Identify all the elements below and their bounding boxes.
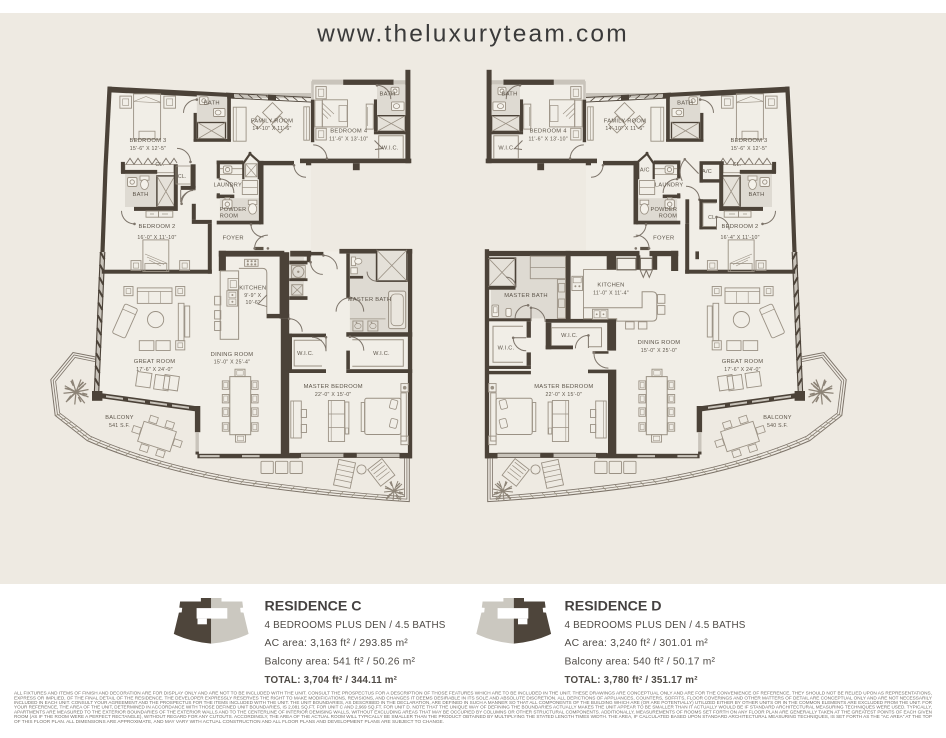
svg-text:9'-9" X: 9'-9" X [244,293,261,299]
svg-text:FOYER: FOYER [653,236,674,242]
svg-text:BATH: BATH [501,91,517,97]
svg-text:MASTER BATH: MASTER BATH [504,293,548,299]
svg-text:BEDROOM 2: BEDROOM 2 [721,224,758,230]
svg-text:BEDROOM 3: BEDROOM 3 [129,138,166,144]
svg-text:www.theluxuryteam.com: www.theluxuryteam.com [316,21,629,48]
svg-text:BATH: BATH [379,91,395,97]
svg-text:W.I.C.: W.I.C. [373,351,390,357]
svg-text:W.I.C.: W.I.C. [561,333,578,339]
svg-text:W.I.C.: W.I.C. [297,351,314,357]
svg-text:BATH: BATH [204,100,220,106]
svg-text:ROOM: ROOM [220,214,238,220]
svg-text:4 BEDROOMS PLUS DEN / 4.5 BATH: 4 BEDROOMS PLUS DEN / 4.5 BATHS [265,620,446,631]
svg-text:17'-6" X 24'-0": 17'-6" X 24'-0" [724,367,761,373]
svg-text:CL.: CL. [178,174,187,180]
svg-text:POWDER: POWDER [220,207,247,213]
svg-text:TOTAL: 3,704 ft² / 344.11 m²: TOTAL: 3,704 ft² / 344.11 m² [265,675,398,686]
svg-text:RESIDENCE D: RESIDENCE D [565,599,662,615]
svg-text:541 S.F.: 541 S.F. [109,423,130,429]
svg-text:POWDER: POWDER [651,207,678,213]
svg-text:16'-4" X 11'-10": 16'-4" X 11'-10" [720,235,759,241]
svg-text:A/C: A/C [640,168,650,174]
svg-text:CL.: CL. [733,162,742,168]
svg-text:W.I.C.: W.I.C. [498,145,515,151]
svg-text:BATH: BATH [132,192,148,198]
svg-text:540 S.F.: 540 S.F. [767,423,788,429]
svg-text:22'-0" X 15'-0": 22'-0" X 15'-0" [315,392,352,398]
svg-text:22'-0" X 15'-0": 22'-0" X 15'-0" [546,392,583,398]
svg-text:TOTAL: 3,780 ft² / 351.17 m²: TOTAL: 3,780 ft² / 351.17 m² [565,675,699,686]
svg-text:17'-6" X 24'-0": 17'-6" X 24'-0" [136,367,173,373]
svg-text:MASTER BEDROOM: MASTER BEDROOM [304,384,363,390]
svg-text:15'-0" X 25'-0": 15'-0" X 25'-0" [641,348,678,354]
svg-text:BEDROOM 2: BEDROOM 2 [138,224,175,230]
svg-text:BALCONY: BALCONY [105,415,134,421]
svg-text:10'-6": 10'-6" [245,300,260,306]
svg-text:BATH: BATH [748,192,764,198]
svg-text:W.I.C.: W.I.C. [498,345,515,351]
svg-text:GREAT ROOM: GREAT ROOM [134,359,176,365]
svg-text:KITCHEN: KITCHEN [597,283,624,289]
svg-text:OF THIS FLOOR PLAN. ALL DIMEN: OF THIS FLOOR PLAN. ALL DIMENSIONS ARE A… [14,719,444,724]
svg-text:DINING ROOM: DINING ROOM [638,340,681,346]
svg-text:MASTER BEDROOM: MASTER BEDROOM [534,384,593,390]
svg-text:BATH: BATH [677,100,693,106]
svg-text:FOYER: FOYER [223,236,244,242]
svg-text:15'-6" X 12'-5": 15'-6" X 12'-5" [130,146,167,152]
svg-text:LAUNDRY: LAUNDRY [655,183,683,189]
svg-text:AC area: 3,163 ft² / 293.85 m: AC area: 3,163 ft² / 293.85 m² [265,638,409,649]
svg-text:11'-0" X 11'-4": 11'-0" X 11'-4" [593,291,629,297]
svg-text:W.I.C.: W.I.C. [382,145,399,151]
svg-text:Balcony area: 540 ft² / 50.17: Balcony area: 540 ft² / 50.17 m² [565,657,716,668]
svg-text:AC area: 3,240 ft² / 301.01 m: AC area: 3,240 ft² / 301.01 m² [565,638,709,649]
svg-text:11'-6" X 13'-10": 11'-6" X 13'-10" [529,136,568,142]
svg-text:BEDROOM 4: BEDROOM 4 [330,129,368,135]
svg-text:15'-6" X 12'-5": 15'-6" X 12'-5" [731,146,768,152]
svg-text:CL.: CL. [708,215,717,221]
svg-text:BEDROOM 4: BEDROOM 4 [530,129,568,135]
svg-text:RESIDENCE C: RESIDENCE C [265,599,362,615]
svg-text:DINING ROOM: DINING ROOM [211,352,254,358]
svg-text:11'-6" X 13'-10": 11'-6" X 13'-10" [329,136,368,142]
svg-text:BALCONY: BALCONY [763,415,792,421]
svg-text:FAMILY ROOM: FAMILY ROOM [604,119,646,125]
svg-text:16'-0" X 11'-10": 16'-0" X 11'-10" [137,235,176,241]
svg-text:ROOM: ROOM [659,214,677,220]
svg-text:CL.: CL. [155,162,164,168]
svg-text:FAMILY ROOM: FAMILY ROOM [251,119,293,125]
svg-text:GREAT ROOM: GREAT ROOM [722,359,764,365]
svg-text:14'-10" X 11'-6": 14'-10" X 11'-6" [605,126,644,132]
svg-text:Balcony area: 541 ft² / 50.26: Balcony area: 541 ft² / 50.26 m² [265,657,416,668]
svg-text:MASTER BATH: MASTER BATH [348,297,392,303]
svg-text:KITCHEN: KITCHEN [239,286,266,292]
svg-text:LAUNDRY: LAUNDRY [214,183,242,189]
svg-text:A/C: A/C [702,169,712,175]
svg-text:15'-0" X 25'-4": 15'-0" X 25'-4" [214,360,251,366]
svg-text:BEDROOM 3: BEDROOM 3 [730,138,767,144]
svg-text:14'-10" X 11'-6": 14'-10" X 11'-6" [252,126,291,132]
svg-text:4 BEDROOMS PLUS DEN / 4.5 BATH: 4 BEDROOMS PLUS DEN / 4.5 BATHS [565,620,746,631]
